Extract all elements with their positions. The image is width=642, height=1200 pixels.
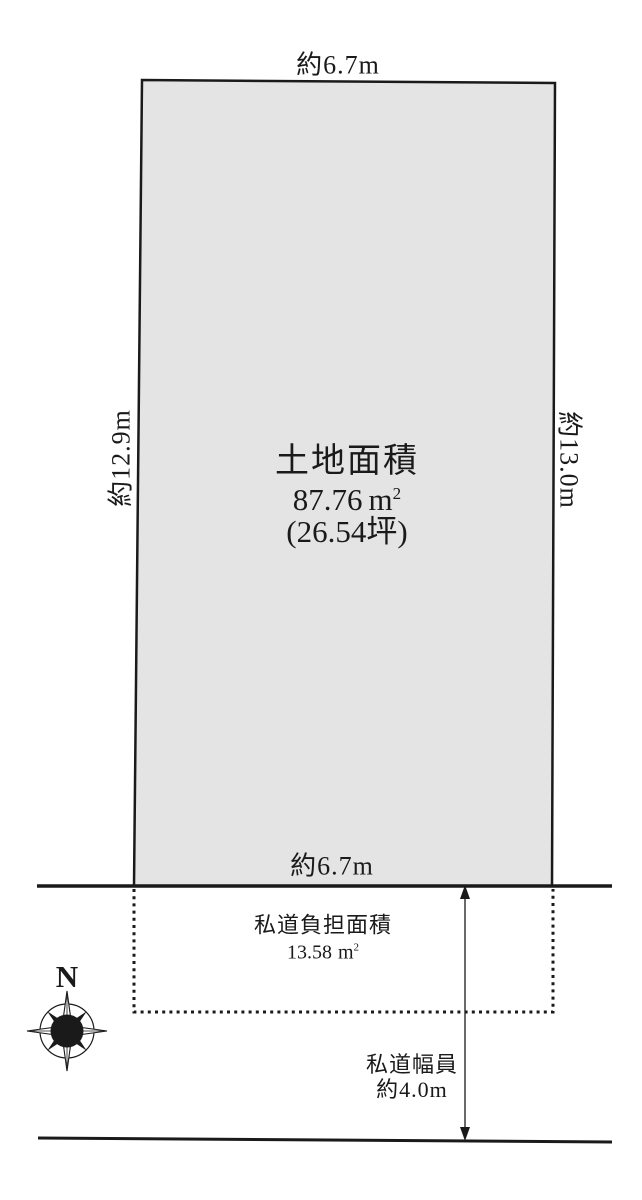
parcel-area-tsubo: (26.54坪) <box>275 516 419 548</box>
parcel-area-block: 土地面積 87.76m2 (26.54坪) <box>275 446 419 548</box>
parcel-area-title: 土地面積 <box>275 446 419 478</box>
diagram-shapes <box>0 0 642 1200</box>
private-road-burden-label: 私道負担面積 <box>254 914 392 937</box>
dimension-top: 約6.7m <box>296 45 380 82</box>
parcel-area-value: 87.76m2 <box>275 478 419 516</box>
private-road-burden-value: 13.58m2 <box>254 937 392 965</box>
land-plot-diagram: 約6.7m 約12.9m 約13.0m 約6.7m 土地面積 87.76m2 (… <box>0 0 642 1200</box>
private-road-burden-block: 私道負担面積 13.58m2 <box>254 914 392 965</box>
private-road-width-label: 私道幅員 <box>366 1052 458 1077</box>
dimension-bottom: 約6.7m <box>290 846 374 883</box>
width-arrow <box>460 885 470 1141</box>
compass-north-label: N <box>56 959 78 995</box>
private-road-width-block: 私道幅員 約4.0m <box>366 1052 458 1102</box>
dimension-right: 約13.0m <box>553 411 590 509</box>
road-line-bottom <box>38 1138 612 1142</box>
private-road-width-value: 約4.0m <box>366 1077 458 1102</box>
compass-rose-icon <box>27 991 107 1071</box>
dimension-left: 約12.9m <box>101 409 138 507</box>
